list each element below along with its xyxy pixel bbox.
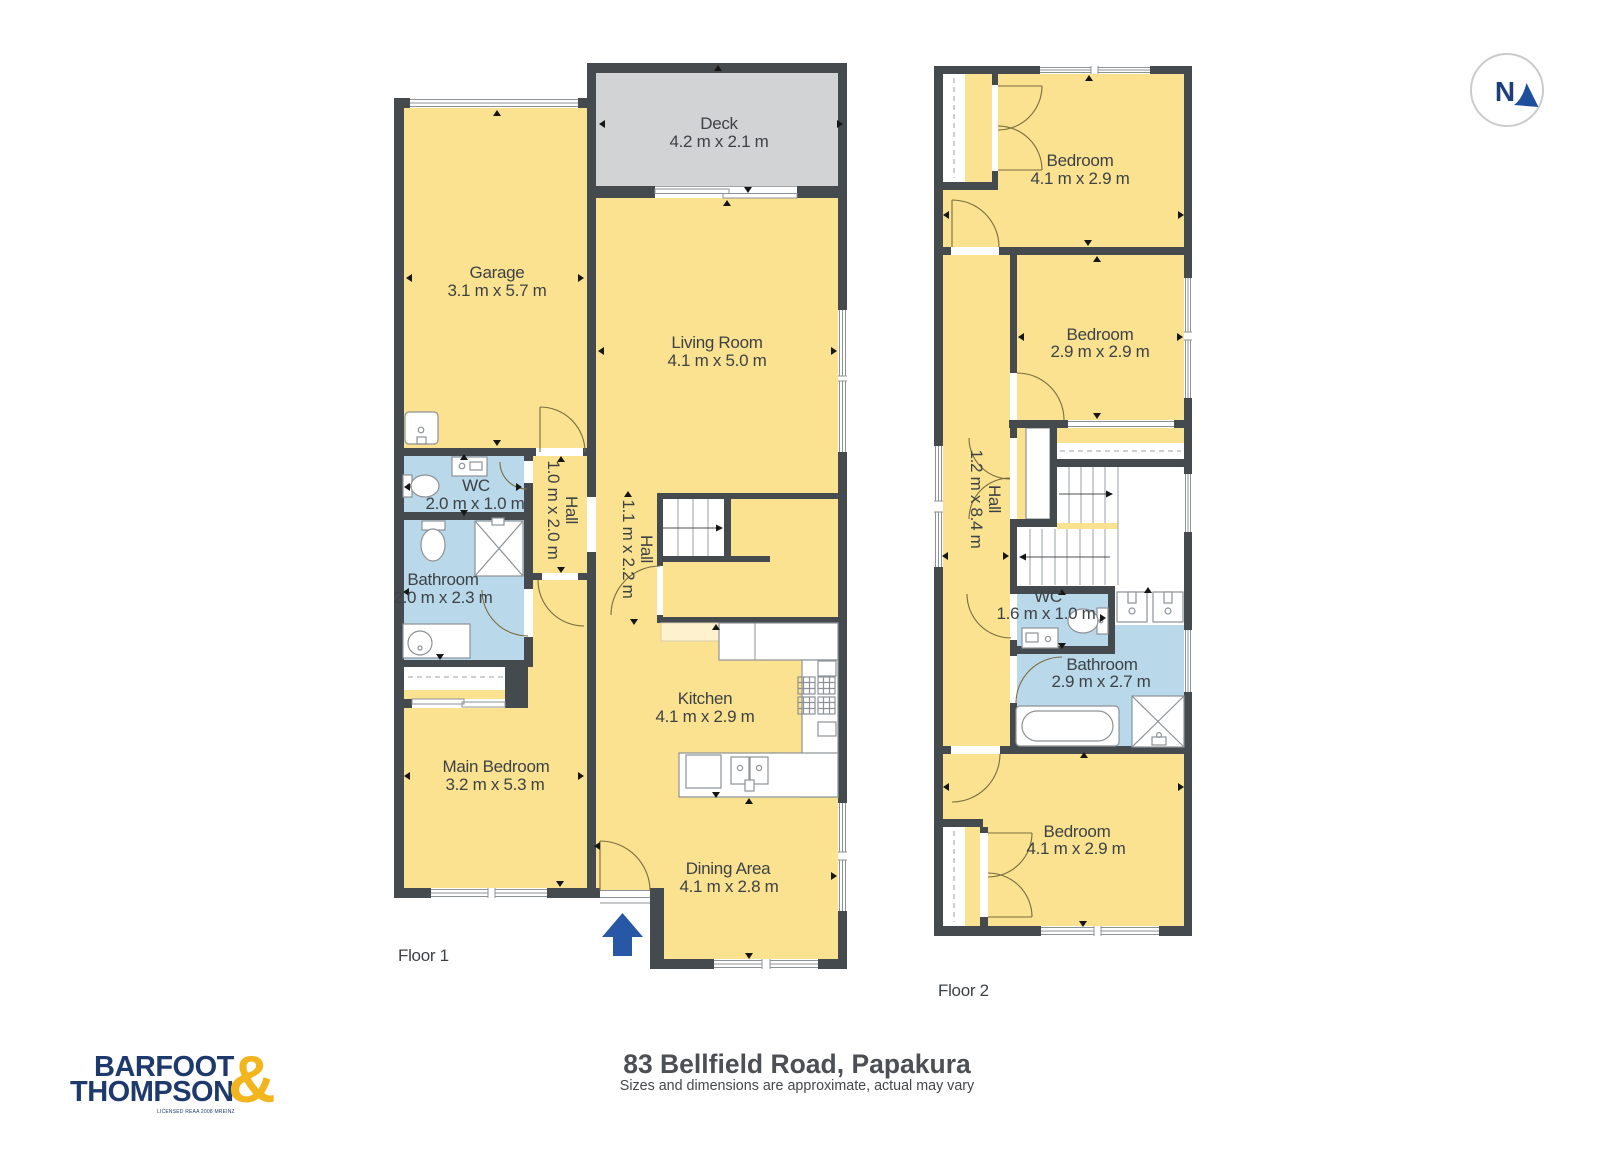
svg-text:LICENSED REAA 2008 MREINZ: LICENSED REAA 2008 MREINZ — [157, 1109, 235, 1115]
svg-text:4.1 m x 2.9 m: 4.1 m x 2.9 m — [655, 707, 754, 726]
svg-text:1.1 m x 2.2 m: 1.1 m x 2.2 m — [619, 499, 638, 598]
svg-text:Living Room: Living Room — [671, 333, 762, 352]
svg-text:Bathroom: Bathroom — [407, 570, 478, 589]
svg-text:2.0 m x 2.3 m: 2.0 m x 2.3 m — [393, 588, 492, 607]
svg-text:Floor 1: Floor 1 — [398, 946, 449, 965]
svg-text:4.1 m x 2.8 m: 4.1 m x 2.8 m — [679, 877, 778, 896]
svg-text:Sizes and dimensions are appro: Sizes and dimensions are approximate, ac… — [620, 1078, 975, 1094]
svg-text:1.0 m x 2.0 m: 1.0 m x 2.0 m — [544, 460, 563, 559]
svg-text:2.9 m x 2.7 m: 2.9 m x 2.7 m — [1051, 672, 1150, 691]
svg-text:3.1 m x 5.7 m: 3.1 m x 5.7 m — [447, 281, 546, 300]
svg-text:N: N — [1495, 76, 1515, 107]
svg-text:THOMPSON: THOMPSON — [70, 1076, 234, 1108]
svg-text:3.2 m x 5.3 m: 3.2 m x 5.3 m — [445, 775, 544, 794]
svg-text:4.1 m x 2.9 m: 4.1 m x 2.9 m — [1026, 839, 1125, 858]
svg-text:Hall: Hall — [985, 485, 1004, 513]
svg-text:&: & — [228, 1042, 276, 1116]
svg-text:1.2 m x 8.4 m: 1.2 m x 8.4 m — [967, 449, 986, 548]
svg-text:83 Bellfield Road, Papakura: 83 Bellfield Road, Papakura — [623, 1049, 971, 1079]
svg-text:Bedroom: Bedroom — [1047, 151, 1114, 170]
svg-text:4.2 m x 2.1 m: 4.2 m x 2.1 m — [669, 132, 768, 151]
svg-text:Deck: Deck — [700, 114, 738, 133]
svg-text:1.6 m x 1.0 m: 1.6 m x 1.0 m — [996, 604, 1095, 623]
svg-text:4.1 m x 2.9 m: 4.1 m x 2.9 m — [1030, 169, 1129, 188]
svg-text:4.1 m x 5.0 m: 4.1 m x 5.0 m — [667, 351, 766, 370]
svg-text:Dining Area: Dining Area — [686, 859, 771, 878]
svg-text:WC: WC — [462, 476, 490, 495]
svg-text:Floor 2: Floor 2 — [938, 981, 989, 1000]
svg-text:2.0 m x 1.0 m: 2.0 m x 1.0 m — [425, 494, 524, 513]
svg-text:Main Bedroom: Main Bedroom — [443, 757, 550, 776]
svg-text:Hall: Hall — [637, 535, 656, 563]
svg-text:Kitchen: Kitchen — [678, 689, 733, 708]
svg-text:2.9 m x 2.9 m: 2.9 m x 2.9 m — [1050, 342, 1149, 361]
svg-text:Garage: Garage — [470, 263, 525, 282]
svg-text:Hall: Hall — [562, 496, 581, 524]
